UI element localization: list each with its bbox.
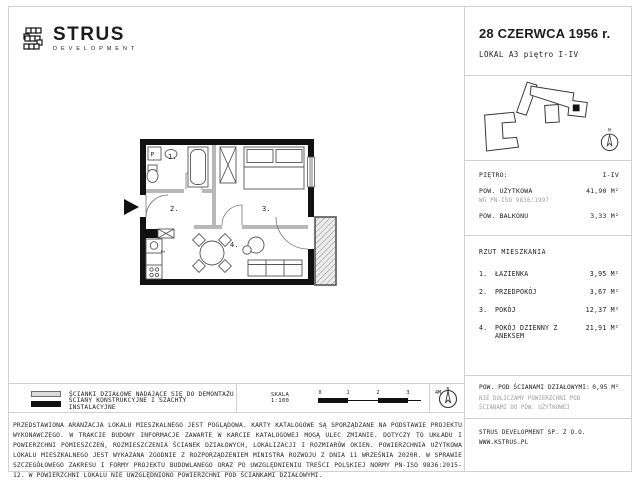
table-row: POW. UŻYTKOWA 41,90 M² — [479, 187, 619, 195]
partition-area-section: POW. POD ŚCIANAMI DZIAŁOWYMI: 0,95 M² NI… — [465, 376, 632, 418]
toilet-icon — [147, 170, 158, 183]
svg-text:N: N — [608, 128, 611, 134]
room-label-1: 1. — [168, 153, 176, 161]
room-number: 2. — [479, 288, 495, 296]
info-value: I-IV — [603, 171, 619, 179]
brand-subtitle: DEVELOPMENT — [53, 46, 138, 52]
table-row: 2. PRZEDPOKÓJ 3,67 M² — [479, 288, 619, 296]
compass-icon: N — [601, 128, 617, 151]
room-area: 21,91 M² — [586, 324, 619, 340]
balcony — [315, 217, 336, 285]
catalog-card-page: { "brand": { "name": "STRUS", "sub": "DE… — [0, 0, 640, 480]
info-label: PIĘTRO: — [479, 171, 508, 179]
partition-value: 0,95 M² — [592, 384, 619, 391]
scale-bar-section: SKALA 1:100 0 1 2 3 4M — [236, 384, 429, 412]
kitchen-sink-icon — [150, 242, 158, 250]
room-label-2: 2. — [170, 205, 178, 213]
room-list-title: RZUT MIESZKANIA — [479, 248, 619, 256]
brand-logo: STRUS DEVELOPMENT — [20, 26, 138, 52]
info-label: POW. UŻYTKOWA — [479, 187, 532, 195]
info-value: 41,90 M² — [586, 187, 619, 195]
entrance-door — [124, 195, 168, 217]
scale-tick: 2 — [376, 390, 379, 396]
table-row: 1. ŁAZIENKA 3,95 M² — [479, 270, 619, 278]
building-outline — [485, 112, 519, 151]
company-footer: STRUS DEVELOPMENT SP. Z O.O. WWW.KSTRUS.… — [465, 419, 632, 471]
scale-tick: 1 — [346, 390, 349, 396]
legend-strip: ŚCIANKI DZIAŁOWE NADAJĄCE SIĘ DO DEMONTA… — [9, 383, 465, 413]
unit-subtitle: LOKAL A3 piętro I-IV — [479, 50, 632, 59]
washer-label: P — [151, 152, 155, 159]
balcony-door-arc — [276, 217, 308, 249]
room-area: 12,37 M² — [586, 306, 619, 314]
page-title: 28 CZERWCA 1956 r. — [479, 26, 632, 41]
room-list: RZUT MIESZKANIA 1. ŁAZIENKA 3,95 M² 2. P… — [465, 236, 632, 375]
room-name: POKÓJ — [495, 306, 586, 314]
room-number: 4. — [479, 324, 495, 340]
lounge-furniture — [243, 237, 302, 276]
company-website: WWW.KSTRUS.PL — [479, 438, 619, 448]
room-area: 3,67 M² — [590, 288, 619, 296]
table-row: 4. POKÓJ DZIENNY Z ANEKSEM 21,91 M² — [479, 324, 619, 340]
kitchen-label: Z — [159, 250, 165, 253]
dining-set — [193, 234, 232, 273]
entrance-arrow-icon — [124, 199, 139, 215]
room-area: 3,95 M² — [590, 270, 619, 278]
room-number: 1. — [479, 270, 495, 278]
info-value: 3,33 M² — [590, 212, 619, 220]
disclaimer-text: PRZEDSTAWIONA ARANŻACJA LOKALU MIESZKALN… — [13, 421, 462, 480]
room-number: 3. — [479, 306, 495, 314]
company-name: STRUS DEVELOPMENT SP. Z O.O. — [479, 428, 619, 438]
brand-name: STRUS — [53, 26, 138, 44]
sofa-icon — [248, 260, 302, 276]
info-label: POW. BALKONU — [479, 212, 528, 220]
site-map: N — [465, 76, 632, 160]
building-outline — [545, 105, 560, 123]
bathroom-fixtures — [147, 147, 208, 187]
scale-tick: 0 — [318, 390, 321, 396]
table-row: 3. POKÓJ 12,37 M² — [479, 306, 619, 314]
dining-table-icon — [200, 241, 224, 265]
svg-text:N: N — [446, 387, 449, 393]
table-row: POW. BALKONU 3,33 M² — [479, 212, 619, 220]
scale-bar: 0 1 2 3 4M — [318, 390, 429, 406]
scale-label: SKALA 1:100 — [271, 392, 306, 404]
legend-item: ŚCIANY KONSTRUKCYJNE I SZACHTY INSTALACY… — [31, 399, 236, 409]
compass-cell: N — [429, 384, 465, 412]
norm-note: WG PN-ISO 9836:1997 — [479, 198, 619, 204]
area-info-table: PIĘTRO: I-IV POW. UŻYTKOWA 41,90 M² WG P… — [465, 161, 632, 235]
partition-label: POW. POD ŚCIANAMI DZIAŁOWYMI: — [479, 384, 590, 391]
partition-wall-swatch — [31, 391, 61, 397]
bedroom-window — [308, 157, 315, 187]
room-label-4: 4. — [230, 241, 238, 249]
table-row: PIĘTRO: I-IV — [479, 171, 619, 179]
room-name: POKÓJ DZIENNY Z ANEKSEM — [495, 324, 586, 340]
bedroom-furniture — [220, 147, 304, 189]
floor-plan: P Z 1. 2. 3. — [98, 132, 342, 302]
legend-label: ŚCIANY KONSTRUKCYJNE I SZACHTY INSTALACY… — [69, 397, 236, 411]
partition-note: NIE DOLICZAMY POWIERZCHNI POD ŚCIANAMI D… — [479, 395, 589, 412]
room-name: ŁAZIENKA — [495, 270, 590, 278]
structural-wall-swatch — [31, 401, 61, 407]
room-name: PRZEDPOKÓJ — [495, 288, 590, 296]
strus-logo-icon — [20, 27, 46, 51]
header: 28 CZERWCA 1956 r. LOKAL A3 piętro I-IV — [465, 6, 632, 75]
room-label-3: 3. — [262, 205, 270, 213]
unit-location-marker — [573, 105, 580, 112]
scale-tick: 3 — [406, 390, 409, 396]
scale-tick: 4M — [435, 390, 441, 396]
wall-legend: ŚCIANKI DZIAŁOWE NADAJĄCE SIĘ DO DEMONTA… — [9, 384, 236, 412]
